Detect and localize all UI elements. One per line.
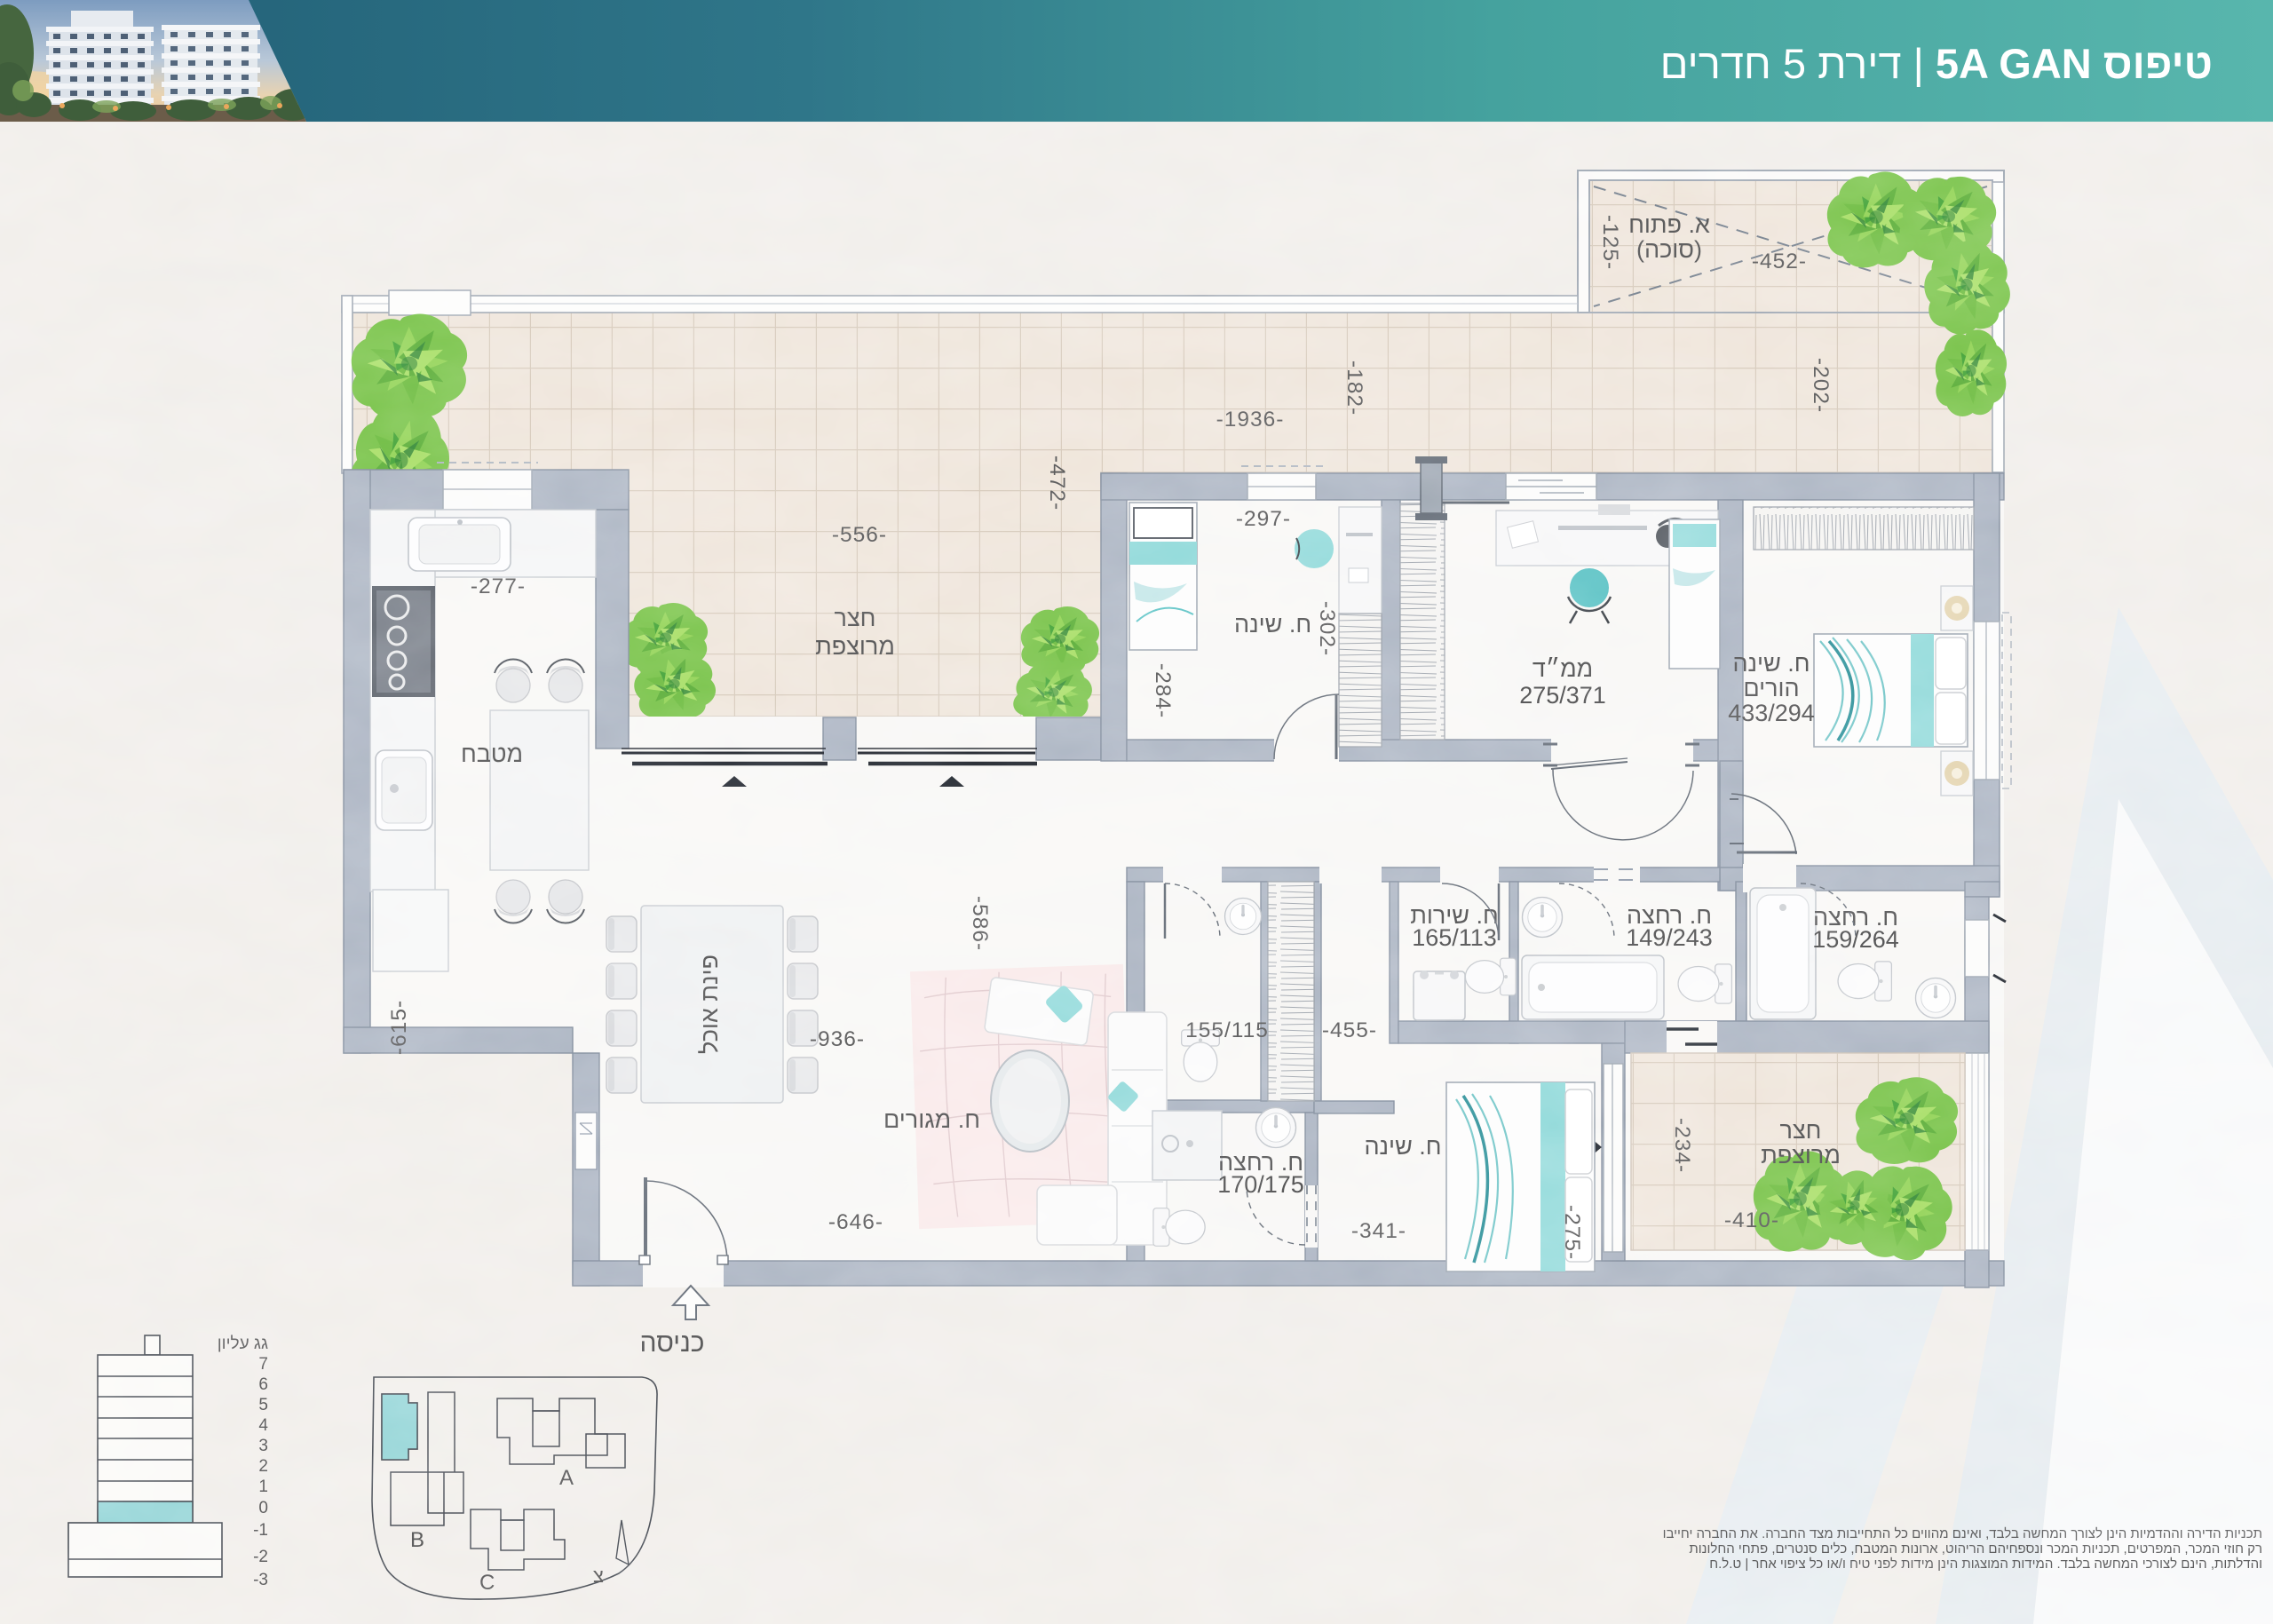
svg-text:טיפוס 5A GAN | דירת 5 חדרים: טיפוס 5A GAN | דירת 5 חדרים [1660,40,2213,87]
